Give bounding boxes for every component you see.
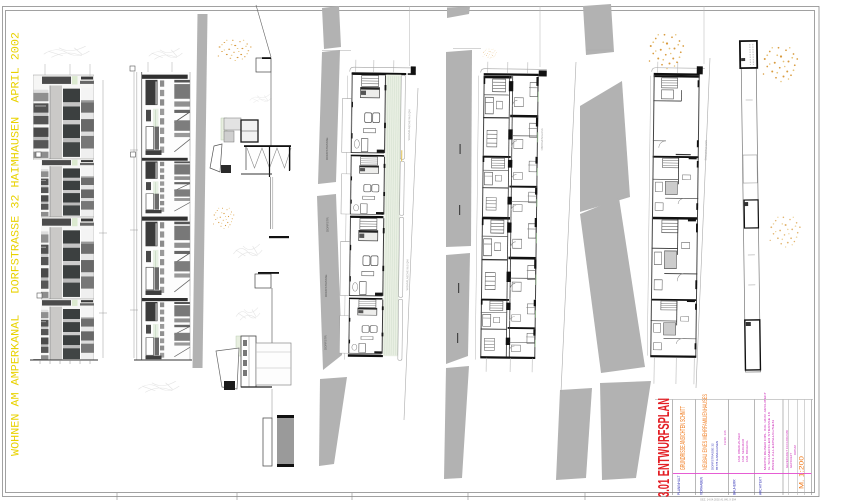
svg-text:DORFSTRASSE: DORFSTRASSE [324,274,328,297]
svg-text:PLANINHALT: PLANINHALT [677,476,681,495]
svg-text:VORHABEN: VORHABEN [700,476,704,495]
svg-text:ARCHITEKT: ARCHITEKT [759,477,763,495]
svg-text:DORFSTR.: DORFSTR. [326,217,330,232]
svg-text:85391 ALLERSHAUSEN: 85391 ALLERSHAUSEN [771,420,775,470]
svg-text:FAM. BRUECKL: FAM. BRUECKL [745,440,749,462]
svg-text:DORFSTRASSE 32: DORFSTRASSE 32 [711,443,715,470]
svg-text:NEUBAU EINES MEHRFAMILIENHAUSE: NEUBAU EINES MEHRFAMILIENHAUSES [702,394,709,470]
svg-text:WOHNFLAECHE 96.5 QM: WOHNFLAECHE 96.5 QM [405,260,409,291]
svg-text:3.01 ENTWURFSPLAN: 3.01 ENTWURFSPLAN [656,398,673,497]
svg-text:WOHNFLAECHE 96.5 QM: WOHNFLAECHE 96.5 QM [407,110,411,141]
svg-text:DORFSTR.: DORFSTR. [324,335,328,350]
svg-text:DATUM: DATUM [793,445,797,455]
svg-text:ERDGESCHOSS: ERDGESCHOSS [704,140,708,160]
svg-text:85778 HAIMHAUSEN: 85778 HAIMHAUSEN [715,441,719,470]
svg-text:GEZ. 14.04.2002 A1 841 X 594: GEZ. 14.04.2002 A1 841 X 594 [700,498,737,502]
svg-text:BAUHERR: BAUHERR [733,479,737,495]
svg-text:M. 1:200: M. 1:200 [800,455,806,489]
svg-text:WOHNEN AM AMPERKANAL DORFSTR: WOHNEN AM AMPERKANAL DORFSTRASSE 32 HAIM… [11,32,23,456]
svg-text:GRUNDRISSE ANSICHTEN SCHNITT: GRUNDRISSE ANSICHTEN SCHNITT [680,406,687,470]
svg-text:FLNR. 136: FLNR. 136 [723,430,727,445]
svg-text:DORFSTRASSE: DORFSTRASSE [325,137,329,160]
svg-text:OBERGESCHOSS: OBERGESCHOSS [540,128,544,150]
